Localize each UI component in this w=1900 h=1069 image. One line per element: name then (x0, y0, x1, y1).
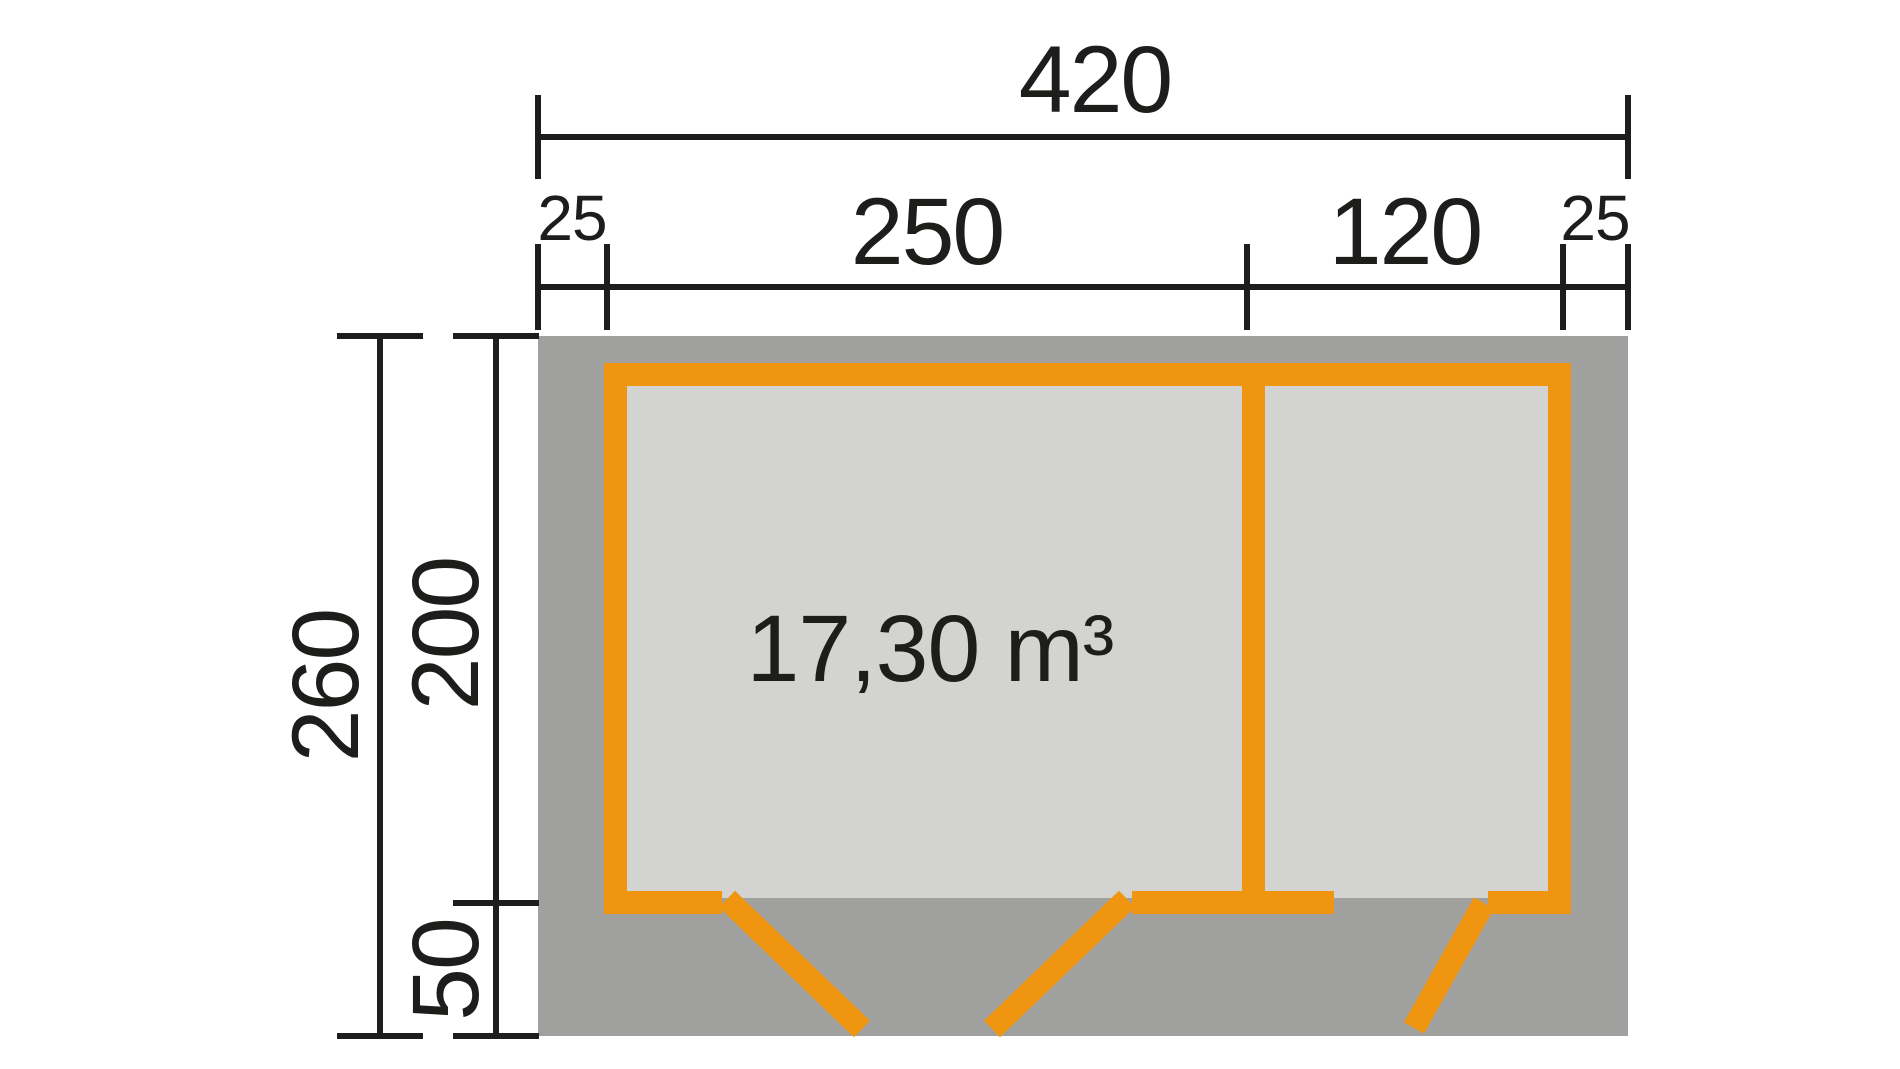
wall-right (1548, 363, 1571, 914)
label-room-depth: 200 (393, 558, 499, 711)
label-side-room-width: 120 (1329, 179, 1482, 285)
label-total-width: 420 (1019, 27, 1172, 133)
label-main-room-width: 250 (851, 179, 1004, 285)
label-total-depth: 260 (273, 610, 379, 763)
wall-left (604, 363, 627, 914)
floor-plan-svg: 420 25 250 120 25 260 200 50 17,30 m³ (0, 0, 1900, 1069)
floor-plan-diagram: 420 25 250 120 25 260 200 50 17,30 m³ (0, 0, 1900, 1069)
wall-front-middle-segment (1132, 891, 1334, 914)
wall-front-right-segment (1488, 891, 1571, 914)
wall-front-left-segment (604, 891, 722, 914)
label-right-overhang: 25 (1560, 182, 1629, 254)
wall-partition (1242, 363, 1265, 891)
wall-back (604, 363, 1571, 386)
label-porch-depth: 50 (393, 919, 499, 1021)
label-left-overhang: 25 (537, 182, 606, 254)
label-interior-volume: 17,30 m³ (747, 596, 1114, 702)
